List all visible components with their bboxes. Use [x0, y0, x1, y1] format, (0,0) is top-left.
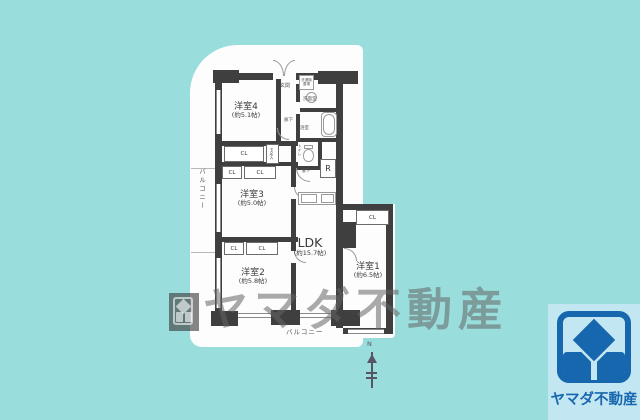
room-size: (約6.5帖)	[343, 272, 393, 279]
refrigerator-box: R	[320, 159, 336, 178]
floorplan-canvas: CL 下足入 CL CL CL CL CL 洗濯機置場 R 洋室4 (約5.1帖…	[0, 0, 640, 420]
kitchen-sink-icon	[301, 194, 317, 203]
wall-room1-stub	[343, 222, 356, 248]
north-arrow-tick	[366, 377, 377, 379]
room-label-western3: 洋室3 (約5.0帖)	[220, 190, 284, 208]
bathroom-label: 浴室	[300, 126, 309, 131]
north-arrow-head-icon	[367, 354, 377, 363]
closet-label: CL	[229, 170, 236, 176]
bathtub-inner-icon	[323, 114, 335, 135]
room-label-western4: 洋室4 (約5.1帖)	[214, 102, 278, 120]
closet-room2-b: CL	[246, 242, 278, 255]
washing-machine-area: 洗濯機置場	[299, 75, 314, 90]
closet-label: CL	[241, 151, 248, 157]
closet-room4: CL	[224, 146, 264, 162]
wall-center-seg1	[291, 141, 296, 187]
entrance-label: 玄関	[280, 84, 290, 90]
refrigerator-label: R	[325, 164, 331, 173]
balcony-divider	[191, 252, 217, 253]
closet-label: CL	[257, 170, 264, 176]
north-label: N	[367, 341, 372, 348]
room-label-western1: 洋室1 (約6.5帖)	[343, 262, 393, 280]
room-size: (約5.1帖)	[214, 112, 278, 119]
shoe-cabinet-label: 下足入	[270, 148, 275, 159]
room-size: (約5.0帖)	[220, 200, 284, 207]
closet-room3-b: CL	[244, 166, 276, 179]
wall-corner-topright	[318, 71, 358, 84]
watermark-text: ヤマダ不動産	[203, 287, 509, 332]
north-arrow-tick	[366, 372, 377, 374]
kitchen-stove-icon	[321, 194, 334, 203]
closet-label: CL	[259, 246, 266, 252]
watermark-logo-icon	[169, 293, 199, 331]
room-size: (約15.7帖)	[281, 250, 339, 257]
closet-room3-a: CL	[222, 166, 242, 179]
toilet-label: トイレ	[297, 144, 302, 156]
closet-room1: CL	[356, 210, 389, 225]
hallway-label: 廊下	[284, 118, 293, 123]
shoe-cabinet: 下足入	[266, 144, 279, 164]
wall-right-upper	[336, 84, 343, 168]
closet-label: CL	[369, 215, 376, 221]
hallway-label-2: 廊下	[302, 169, 310, 174]
washroom-label: 洗面室	[303, 97, 317, 102]
laundry-label: 洗濯機置場	[300, 79, 313, 86]
logo-company-name: ヤマダ不動産	[548, 388, 640, 409]
balcony-left-label: バルコニー	[197, 168, 204, 211]
toilet-tank-icon	[304, 145, 313, 149]
room-label-ldk: LDK (約15.7帖)	[281, 236, 339, 258]
closet-label: CL	[231, 246, 238, 252]
closet-room2-a: CL	[224, 242, 244, 255]
toilet-icon	[303, 149, 314, 162]
wall-top-left-seg	[222, 73, 273, 80]
company-logo: ヤマダ不動産	[548, 304, 640, 420]
